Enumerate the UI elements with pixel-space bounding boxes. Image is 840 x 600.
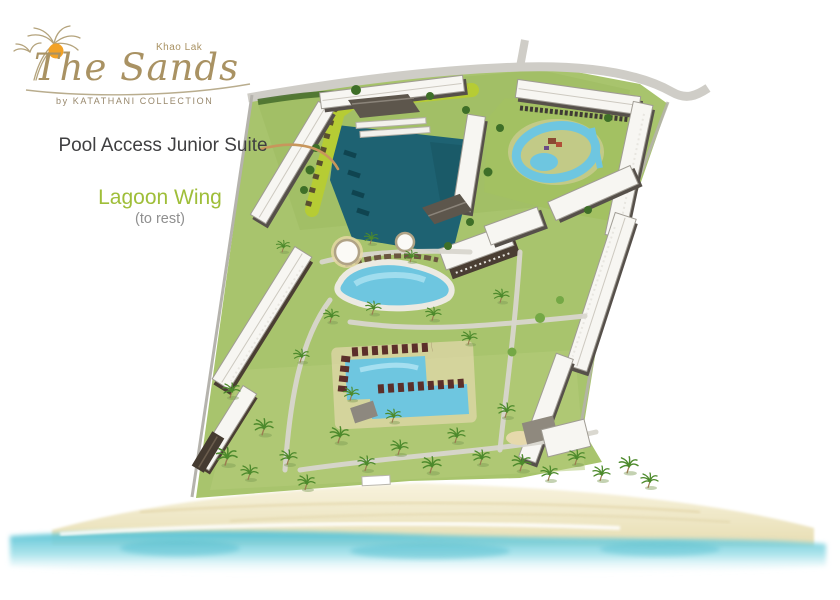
round-pavilion-small bbox=[396, 233, 414, 251]
wing-sublabel: (to rest) bbox=[60, 211, 260, 227]
resort-map-page: Khao Lak The Sands by KATATHANI COLLECTI… bbox=[0, 0, 840, 600]
kids-pool bbox=[508, 119, 604, 185]
round-pavilion-large bbox=[331, 236, 363, 268]
family-pool-complex bbox=[331, 340, 477, 429]
beach-lounger bbox=[362, 475, 390, 485]
logo-brand-name: The Sands bbox=[34, 46, 239, 89]
logo-byline: by KATATHANI COLLECTION bbox=[56, 96, 213, 106]
wing-label: Lagoon Wing bbox=[60, 186, 260, 210]
brand-logo: Khao Lak The Sands by KATATHANI COLLECTI… bbox=[12, 18, 262, 114]
room-type-label: Pool Access Junior Suite bbox=[38, 135, 288, 157]
